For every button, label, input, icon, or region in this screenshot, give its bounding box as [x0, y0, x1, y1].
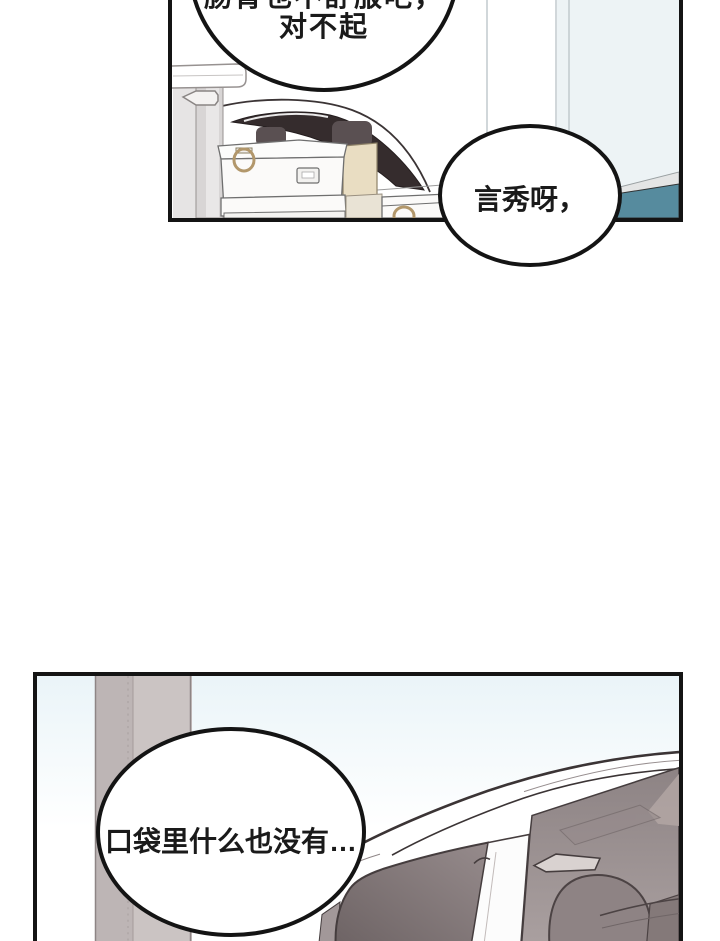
speech-bubble-pocket: 口袋里什么也没有… — [96, 727, 366, 937]
tan-box-lower — [346, 194, 382, 218]
bubble-calling-text: 言秀呀， — [474, 185, 586, 215]
bubble-pocket-text: 口袋里什么也没有… — [105, 827, 357, 857]
tan-box — [343, 143, 377, 202]
comic-page: 肠胃也不舒服吧， 对不起 言秀呀， 口袋里什么也没有… — [0, 0, 720, 941]
bubble-apology-line-2: 对不起 — [192, 12, 456, 42]
speech-bubble-calling: 言秀呀， — [438, 124, 622, 267]
storage-boxes — [218, 140, 470, 218]
